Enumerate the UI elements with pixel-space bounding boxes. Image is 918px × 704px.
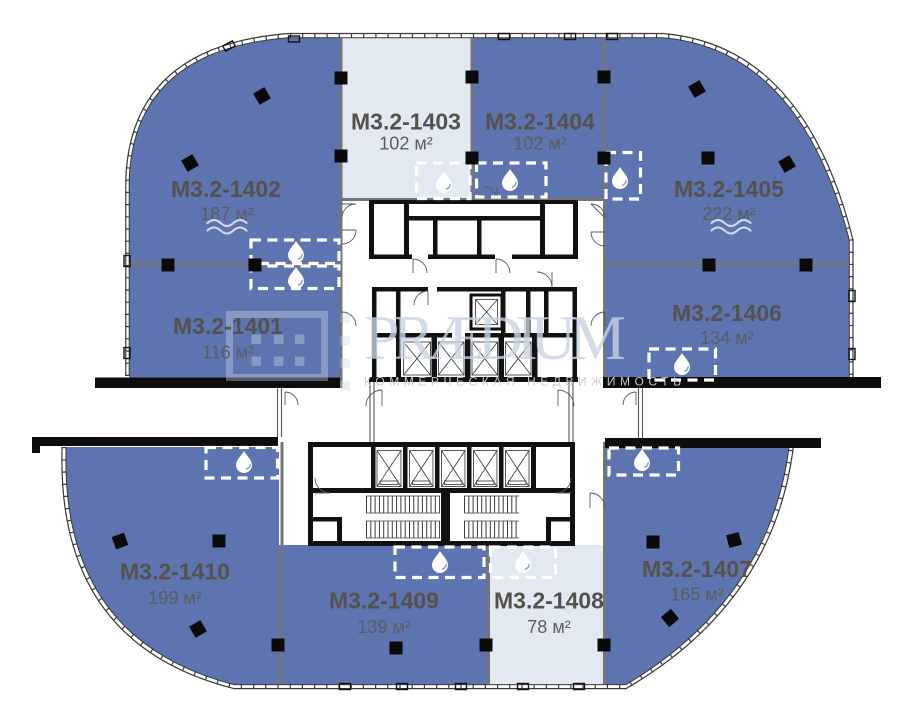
svg-text:116 м²: 116 м² [202, 343, 254, 363]
svg-text:М3.2-1406: М3.2-1406 [672, 300, 782, 326]
svg-text:199 м²: 199 м² [148, 588, 201, 608]
svg-text:165 м²: 165 м² [670, 585, 723, 605]
svg-text:М3.2-1401: М3.2-1401 [173, 313, 283, 339]
svg-text:78 м²: 78 м² [527, 617, 570, 637]
svg-text:М3.2-1409: М3.2-1409 [329, 588, 439, 614]
svg-text:М3.2-1407: М3.2-1407 [642, 556, 752, 582]
svg-text:102 м²: 102 м² [513, 134, 566, 154]
svg-text:134 м²: 134 м² [700, 328, 753, 348]
svg-text:КОММЕРЧЕСКАЯ НЕДВИЖИМОСТЬ: КОММЕРЧЕСКАЯ НЕДВИЖИМОСТЬ [364, 375, 686, 389]
svg-text:PRÆDIUM: PRÆDIUM [364, 302, 626, 373]
svg-text:М3.2-1410: М3.2-1410 [120, 559, 230, 585]
svg-text:М3.2-1402: М3.2-1402 [171, 176, 281, 202]
svg-text:102 м²: 102 м² [379, 134, 432, 154]
svg-text:М3.2-1408: М3.2-1408 [494, 588, 604, 614]
svg-text:М3.2-1405: М3.2-1405 [674, 176, 784, 202]
svg-text:М3.2-1404: М3.2-1404 [485, 109, 595, 135]
svg-text:М3.2-1403: М3.2-1403 [351, 109, 461, 135]
svg-text:139 м²: 139 м² [357, 617, 410, 637]
